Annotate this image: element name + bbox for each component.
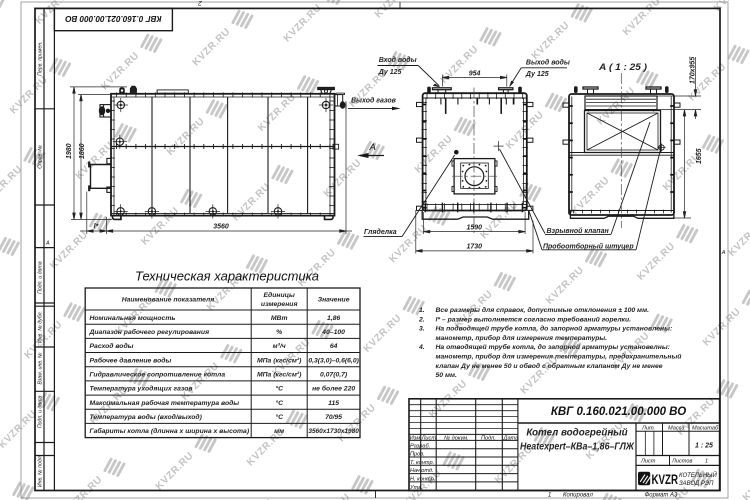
- svg-text:64: 64: [330, 343, 338, 350]
- svg-text:мм: мм: [274, 428, 284, 435]
- svg-text:Техническая характеристика: Техническая характеристика: [135, 269, 319, 284]
- svg-text:Наименование показателя: Наименование показателя: [122, 297, 215, 304]
- svg-text:КОТЕЛЬНЫЙ: КОТЕЛЬНЫЙ: [679, 471, 717, 479]
- svg-text:ЗАВОД РЭП: ЗАВОД РЭП: [679, 481, 714, 487]
- svg-text:1655: 1655: [696, 148, 703, 164]
- svg-text:3560х1730х1980: 3560х1730х1980: [308, 428, 359, 435]
- svg-text:Справ. №: Справ. №: [37, 145, 43, 169]
- svg-text:Масштаб: Масштаб: [692, 426, 719, 432]
- svg-text:Номинальная мощность: Номинальная мощность: [90, 315, 176, 322]
- svg-text:2.: 2.: [418, 316, 425, 323]
- svg-text:Единицы: Единицы: [264, 291, 296, 299]
- svg-text:Габариты котла (длинна х ширин: Габариты котла (длинна х ширина х высота…: [90, 427, 250, 435]
- svg-text:170х955: 170х955: [690, 57, 697, 84]
- svg-text:манометр, прибор для измерения: манометр, прибор для измерения температу…: [436, 334, 608, 342]
- svg-text:Котел водогрейный: Котел водогрейный: [526, 428, 627, 439]
- svg-text:Листов: Листов: [671, 459, 692, 465]
- svg-text:1.: 1.: [419, 307, 425, 314]
- svg-text:115: 115: [328, 400, 339, 407]
- svg-text:1 : 25: 1 : 25: [695, 443, 713, 450]
- svg-text:измерения: измерения: [261, 301, 298, 308]
- svg-text:Разраб.: Разраб.: [410, 443, 430, 449]
- svg-text:l* – размер выполняется соглас: l* – размер выполняется согласно требова…: [436, 315, 632, 323]
- svg-text:Расход воды: Расход воды: [90, 342, 134, 350]
- svg-text:Формат А3: Формат А3: [645, 493, 678, 499]
- svg-text:1980: 1980: [66, 143, 73, 159]
- svg-text:А: А: [45, 241, 50, 247]
- svg-text:%: %: [276, 329, 282, 336]
- svg-text:клапан Ду не менее 50 и обвод: клапан Ду не менее 50 и обвод с обратным…: [436, 362, 663, 370]
- svg-text:Пров.: Пров.: [410, 452, 425, 458]
- svg-text:Вход воды: Вход воды: [379, 56, 417, 64]
- svg-text:Ду 125: Ду 125: [378, 69, 402, 76]
- svg-text:Инв. № подл.: Инв. № подл.: [37, 455, 43, 487]
- svg-text:1860: 1860: [79, 143, 86, 159]
- svg-text:0,07(0,7): 0,07(0,7): [320, 372, 348, 379]
- svg-text:70/95: 70/95: [325, 414, 342, 421]
- svg-text:№ докум.: № докум.: [444, 435, 469, 441]
- svg-text:Выход газов: Выход газов: [351, 96, 397, 104]
- svg-text:Масса: Масса: [668, 426, 685, 432]
- svg-text:Гляделка: Гляделка: [364, 228, 397, 236]
- svg-text:Лист: Лист: [421, 435, 437, 441]
- svg-text:Ду 125: Ду 125: [525, 71, 549, 78]
- svg-text:Лит.: Лит.: [641, 426, 655, 432]
- svg-text:КВГ 0.160.021.00.000 ВО: КВГ 0.160.021.00.000 ВО: [65, 14, 162, 23]
- svg-text:Подп. и дата: Подп. и дата: [37, 396, 43, 429]
- svg-text:Пробоотборный штуцер: Пробоотборный штуцер: [543, 242, 634, 250]
- svg-text:На отводящей трубе котла, до з: На отводящей трубе котла, до запорной ар…: [436, 343, 670, 351]
- svg-text:Т. контр.: Т. контр.: [410, 460, 434, 466]
- svg-text:954: 954: [469, 71, 481, 78]
- svg-text:1730: 1730: [467, 244, 483, 251]
- svg-text:°С: °С: [275, 385, 283, 393]
- svg-text:Н. контр.: Н. контр.: [410, 477, 435, 483]
- svg-text:1,86: 1,86: [327, 315, 340, 322]
- svg-text:МВт: МВт: [271, 315, 288, 322]
- svg-text:А: А: [721, 250, 726, 256]
- svg-text:3.: 3.: [419, 326, 425, 333]
- svg-text:1590: 1590: [467, 224, 483, 231]
- svg-text:Значение: Значение: [318, 297, 350, 304]
- svg-text:Взам. инв. №: Взам. инв. №: [37, 352, 43, 384]
- svg-text:Подп. и дата: Подп. и дата: [37, 261, 43, 294]
- svg-text:Подп.: Подп.: [481, 435, 496, 441]
- svg-text:Изм.: Изм.: [410, 435, 422, 441]
- svg-text:Максимальная рабочая температу: Максимальная рабочая температура воды: [90, 399, 240, 407]
- svg-text:Все размеры для справок, допус: Все размеры для справок, допустимые откл…: [436, 306, 650, 314]
- svg-text:°С: °С: [275, 413, 283, 421]
- svg-text:Температура воды (вход/выход): Температура воды (вход/выход): [90, 413, 203, 421]
- svg-text:Копировал: Копировал: [563, 493, 593, 499]
- svg-text:Утв.: Утв.: [409, 485, 423, 491]
- svg-text:Перв. примен.: Перв. примен.: [37, 41, 43, 75]
- svg-text:На подводящей трубе котла, до: На подводящей трубе котла, до запорной а…: [436, 325, 673, 333]
- svg-text:Дата: Дата: [503, 435, 519, 441]
- svg-text:°С: °С: [275, 399, 283, 407]
- svg-text:А: А: [369, 142, 376, 153]
- svg-text:1: 1: [548, 493, 551, 499]
- svg-text:Рабочее давление воды: Рабочее давление воды: [90, 356, 172, 364]
- svg-text:Гидравлическое сопротивление к: Гидравлическое сопротивление котла: [90, 371, 226, 379]
- svg-text:МПа (кгс/см²): МПа (кгс/см²): [257, 357, 302, 364]
- svg-text:м³/ч: м³/ч: [273, 343, 286, 350]
- svg-text:Heatexpert–КВа–1,86–ГЛЖ: Heatexpert–КВа–1,86–ГЛЖ: [520, 442, 635, 453]
- svg-text:2: 2: [198, 0, 203, 6]
- svg-text:КВГ 0.160.021.00.000 ВО: КВГ 0.160.021.00.000 ВО: [551, 406, 686, 418]
- svg-text:манометр, прибор для измерения: манометр, прибор для измерения температу…: [436, 353, 683, 361]
- svg-text:50 мм.: 50 мм.: [436, 372, 458, 379]
- svg-text:Взрывной клапан: Взрывной клапан: [547, 227, 610, 235]
- svg-text:3560: 3560: [213, 224, 229, 231]
- svg-text:KVZR: KVZR: [652, 472, 679, 487]
- svg-text:0,3(3,0)–0,6(6,0): 0,3(3,0)–0,6(6,0): [308, 357, 359, 364]
- svg-text:Инв. № дубл.: Инв. № дубл.: [37, 311, 43, 343]
- svg-text:МПа (кгс/см²): МПа (кгс/см²): [257, 372, 302, 379]
- svg-text:1: 1: [705, 459, 708, 465]
- svg-text:40–100: 40–100: [321, 329, 345, 336]
- svg-text:не более 220: не более 220: [312, 385, 355, 393]
- svg-text:Диапазон рабочего регулировани: Диапазон рабочего регулирования: [89, 328, 210, 336]
- svg-text:Выход воды: Выход воды: [526, 58, 570, 66]
- svg-text:А ( 1 : 25 ): А ( 1 : 25 ): [598, 62, 647, 73]
- svg-text:Температура уходящих газов: Температура уходящих газов: [90, 385, 193, 393]
- svg-text:Лист: Лист: [640, 459, 656, 465]
- svg-text:l*: l*: [94, 224, 99, 231]
- svg-text:Нач.отд.: Нач.отд.: [410, 468, 434, 474]
- svg-text:4.: 4.: [418, 344, 425, 351]
